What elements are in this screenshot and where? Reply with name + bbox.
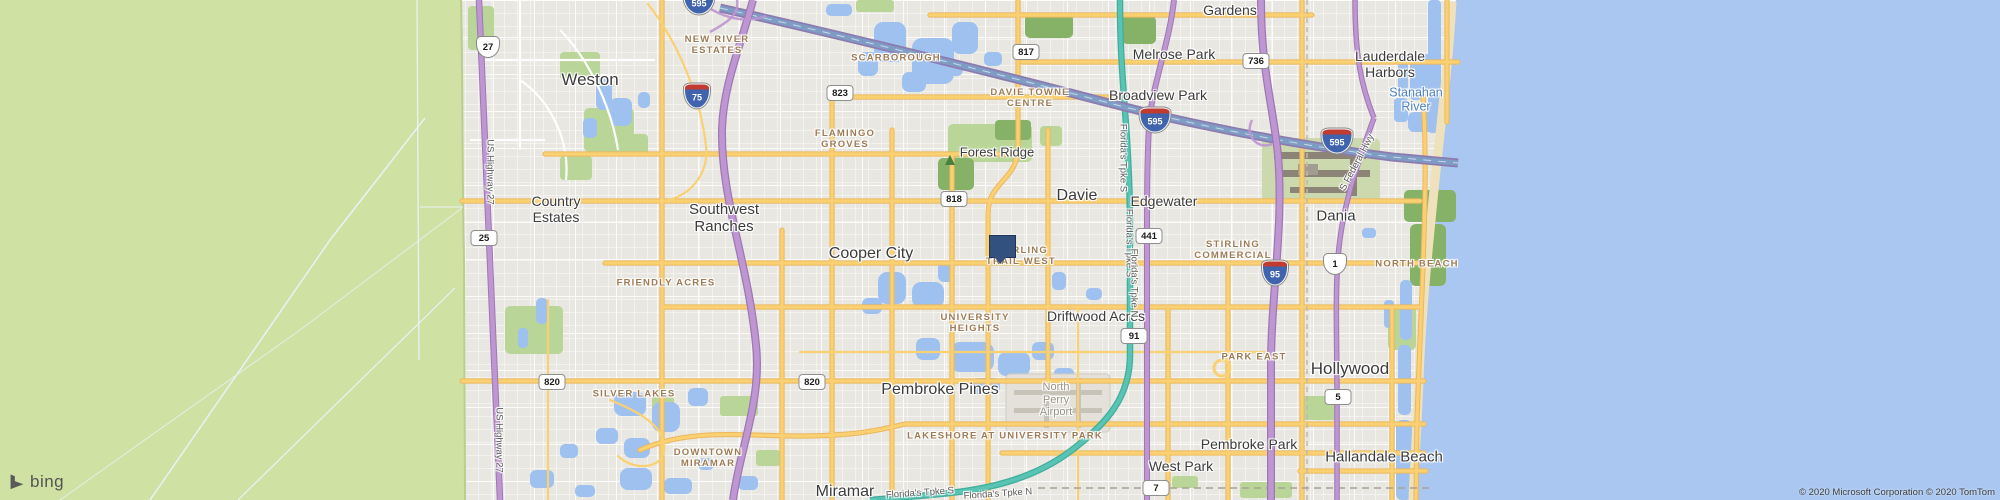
city-label: Forest Ridge (960, 146, 1034, 161)
city-label: Davie (1057, 187, 1098, 205)
route-shield-75: 75 (684, 84, 710, 109)
road-name-label: US Highway 27 (484, 139, 495, 204)
neighborhood-label: DAVIE TOWNE CENTRE (990, 88, 1069, 110)
city-label: Miramar (816, 483, 875, 500)
route-shield-27: 27 (476, 36, 500, 58)
neighborhood-label: FLAMINGO GROVES (815, 129, 875, 151)
neighborhood-label: FRIENDLY ACRES (617, 279, 716, 290)
route-shield-817: 817 (1013, 44, 1040, 60)
bing-logo-text: bing (30, 472, 64, 492)
road-name-label: Florida's Tpke N (963, 487, 1032, 500)
city-label: Southwest Ranches (689, 201, 759, 236)
route-shield-95: 95 (1262, 261, 1288, 286)
city-label: Broadview Park (1109, 87, 1207, 103)
city-label: Dania (1316, 207, 1355, 224)
park-tree-icon (945, 155, 955, 165)
route-shield-818: 818 (941, 191, 968, 207)
route-shield-823: 823 (827, 85, 854, 101)
city-label: Edgewater (1131, 193, 1198, 209)
bing-logo-icon (10, 474, 25, 490)
route-shield-595: 595 (1140, 108, 1171, 133)
neighborhood-label: UNIVERSITY HEIGHTS (940, 313, 1009, 335)
neighborhood-label: SCARBOROUGH (851, 54, 941, 65)
city-label: Weston (561, 70, 618, 90)
road-name-label: Florida's Tpke S (1117, 124, 1128, 192)
neighborhood-label: NEW RIVER ESTATES (685, 35, 750, 57)
city-label: Cooper City (829, 245, 913, 263)
neighborhood-label: LAKESHORE AT UNIVERSITY PARK (907, 432, 1103, 443)
airport-label: North Perry Airport (1040, 381, 1072, 419)
city-label: Hollywood (1311, 359, 1389, 379)
city-label: Melrose Park (1133, 46, 1215, 62)
city-label: Hallandale Beach (1325, 448, 1443, 465)
city-label: Country Estates (531, 193, 580, 225)
neighborhood-label: NORTH BEACH (1375, 260, 1458, 271)
city-label: Pembroke Pines (881, 381, 998, 399)
road-name-label: Florida's Tpke N (1128, 249, 1139, 318)
map-pin-marker[interactable] (989, 235, 1016, 258)
city-label: Lauderdale Harbors (1355, 48, 1425, 80)
city-label: Pembroke Park (1201, 436, 1297, 452)
route-shield-25: 25 (471, 230, 498, 246)
route-shield-595: 595 (684, 0, 715, 15)
route-shield-5: 5 (1325, 389, 1352, 405)
map-canvas[interactable]: North Perry AirportStanahan RiverNEW RIV… (0, 0, 2000, 500)
city-label: West Park (1149, 458, 1213, 474)
neighborhood-label: STIRLING COMMERCIAL (1194, 240, 1271, 262)
route-shield-595: 595 (1322, 129, 1353, 154)
neighborhood-label: PARK EAST (1222, 353, 1287, 364)
neighborhood-label: SILVER LAKES (593, 390, 676, 401)
neighborhood-label: DOWNTOWN MIRAMAR (674, 448, 743, 470)
route-shield-736: 736 (1243, 53, 1270, 69)
route-shield-820: 820 (799, 374, 826, 390)
route-shield-91: 91 (1121, 328, 1148, 344)
route-shield-7: 7 (1143, 480, 1170, 496)
route-shield-820: 820 (539, 374, 566, 390)
map-attribution: © 2020 Microsoft Corporation © 2020 TomT… (1799, 487, 1995, 498)
road-name-label: US Highway 27 (493, 407, 504, 472)
road-name-label: Florida's Tpke S (886, 486, 955, 500)
route-shield-441: 441 (1136, 228, 1163, 244)
city-label: Gardens (1203, 2, 1257, 18)
bing-logo[interactable]: bing (10, 472, 64, 492)
route-shield-1: 1 (1323, 253, 1347, 275)
water-label: Stanahan River (1389, 86, 1443, 115)
